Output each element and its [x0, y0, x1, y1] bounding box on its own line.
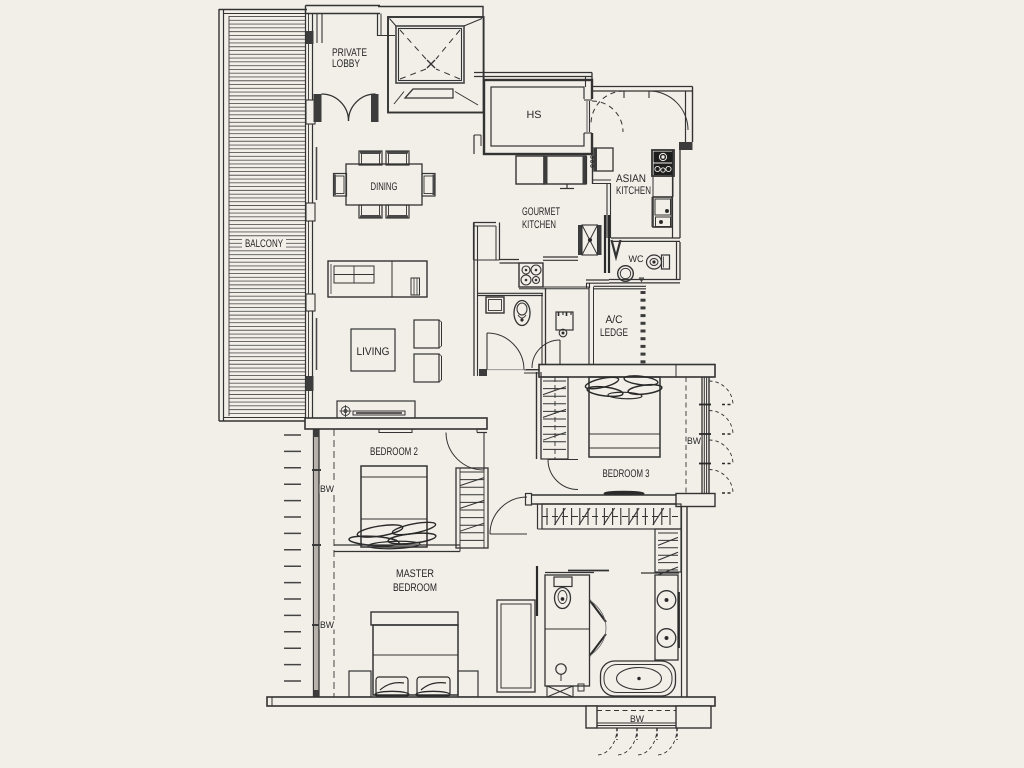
svg-text:BEDROOM: BEDROOM	[393, 582, 437, 594]
svg-text:BEDROOM 2: BEDROOM 2	[370, 446, 418, 458]
svg-text:A/C: A/C	[606, 314, 623, 326]
svg-text:GOURMET: GOURMET	[522, 206, 560, 218]
svg-text:BALCONY: BALCONY	[245, 238, 283, 250]
svg-text:BW: BW	[320, 620, 334, 631]
svg-text:BEDROOM 3: BEDROOM 3	[603, 468, 650, 480]
svg-text:KITCHEN: KITCHEN	[616, 185, 651, 197]
svg-text:HS: HS	[527, 109, 542, 121]
svg-text:LEDGE: LEDGE	[600, 327, 628, 339]
svg-text:LIVING: LIVING	[357, 346, 390, 358]
svg-text:ASIAN: ASIAN	[616, 173, 646, 185]
svg-text:DINING: DINING	[371, 181, 398, 193]
svg-text:BW: BW	[687, 436, 701, 447]
svg-text:BW: BW	[320, 484, 334, 495]
svg-text:LOBBY: LOBBY	[332, 58, 361, 70]
svg-text:WC: WC	[629, 254, 644, 265]
svg-text:KITCHEN: KITCHEN	[522, 219, 556, 231]
svg-text:MASTER: MASTER	[396, 568, 434, 580]
